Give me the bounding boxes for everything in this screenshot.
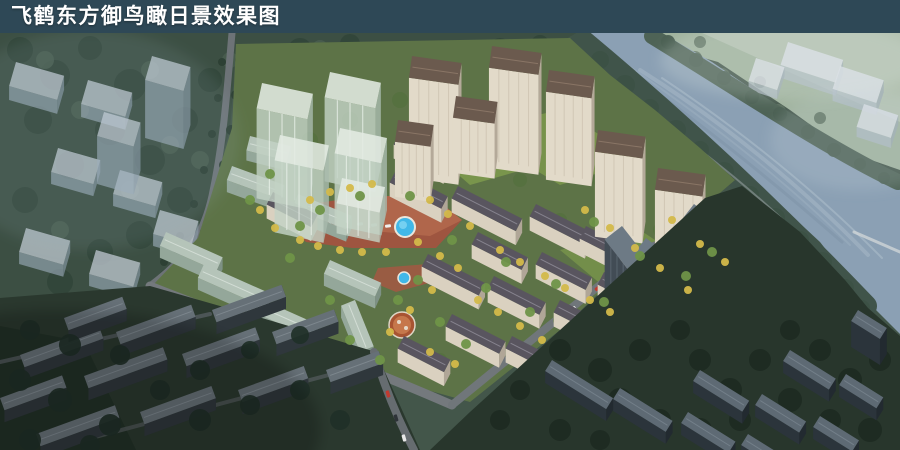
scene-root — [0, 0, 900, 450]
scene-svg — [0, 0, 900, 450]
title-banner: 飞鹤东方御鸟瞰日景效果图 — [0, 0, 900, 33]
rendering-image: 飞鹤东方御鸟瞰日景效果图 — [0, 0, 900, 450]
page-title: 飞鹤东方御鸟瞰日景效果图 — [0, 0, 281, 33]
